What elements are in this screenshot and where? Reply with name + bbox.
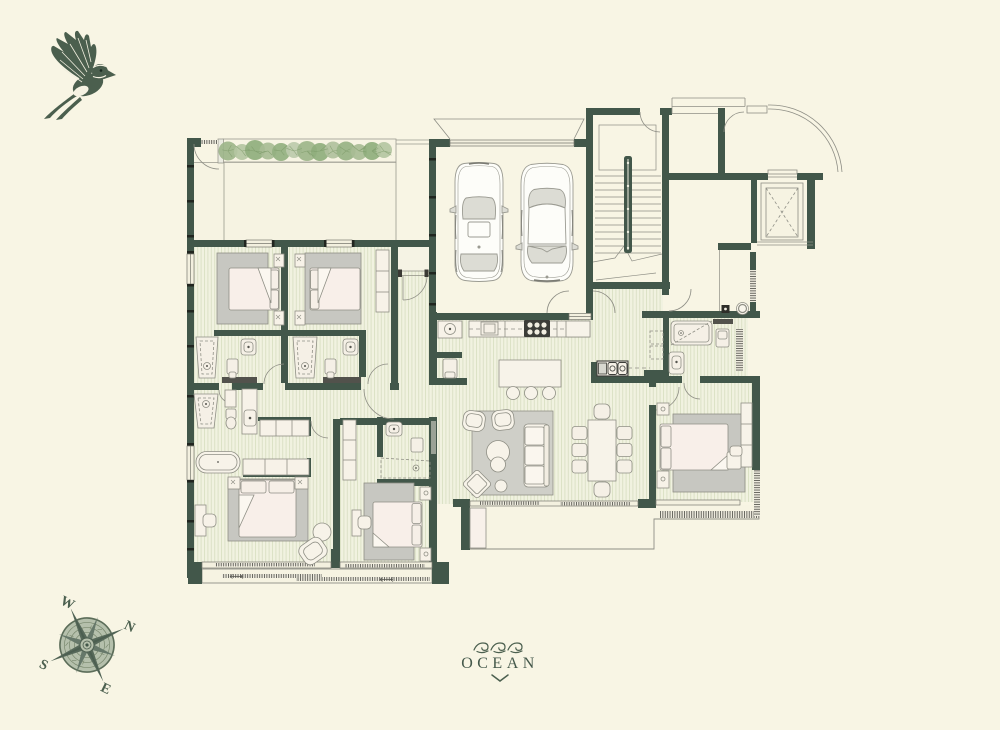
- svg-text:OCEAN: OCEAN: [461, 655, 539, 672]
